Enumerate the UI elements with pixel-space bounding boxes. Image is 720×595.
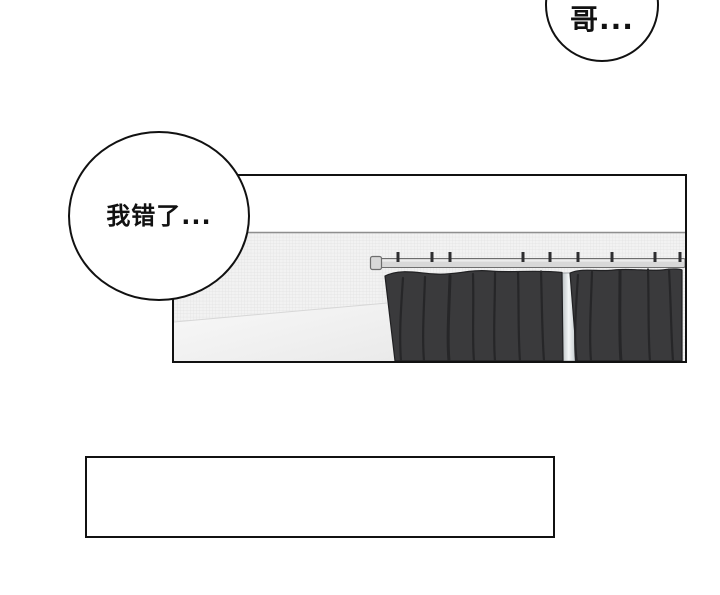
curtain-hook bbox=[611, 252, 614, 262]
curtain-hook bbox=[549, 252, 552, 262]
comic-page: 哥... 我错了... bbox=[0, 0, 720, 595]
curtain-hook bbox=[397, 252, 400, 262]
speech-bubble-left: 我错了... bbox=[68, 131, 250, 301]
speech-text-left: 我错了... bbox=[106, 204, 211, 228]
speech-bubble-top: 哥... bbox=[545, 0, 659, 62]
curtain-hook bbox=[431, 252, 434, 262]
rail-bar bbox=[379, 259, 685, 268]
curtain-hook bbox=[449, 252, 452, 262]
wall-upper bbox=[174, 176, 685, 232]
scene-panel bbox=[172, 174, 687, 363]
curtain-hook bbox=[577, 252, 580, 262]
rail-end-cap bbox=[371, 257, 382, 270]
curtain-hook bbox=[522, 252, 525, 262]
curtain-hook bbox=[654, 252, 657, 262]
curtain-hook bbox=[679, 252, 682, 262]
room-scene bbox=[174, 176, 685, 361]
curtain-right bbox=[570, 269, 682, 361]
empty-caption-box bbox=[85, 456, 555, 538]
speech-text-top: 哥... bbox=[570, 6, 634, 34]
